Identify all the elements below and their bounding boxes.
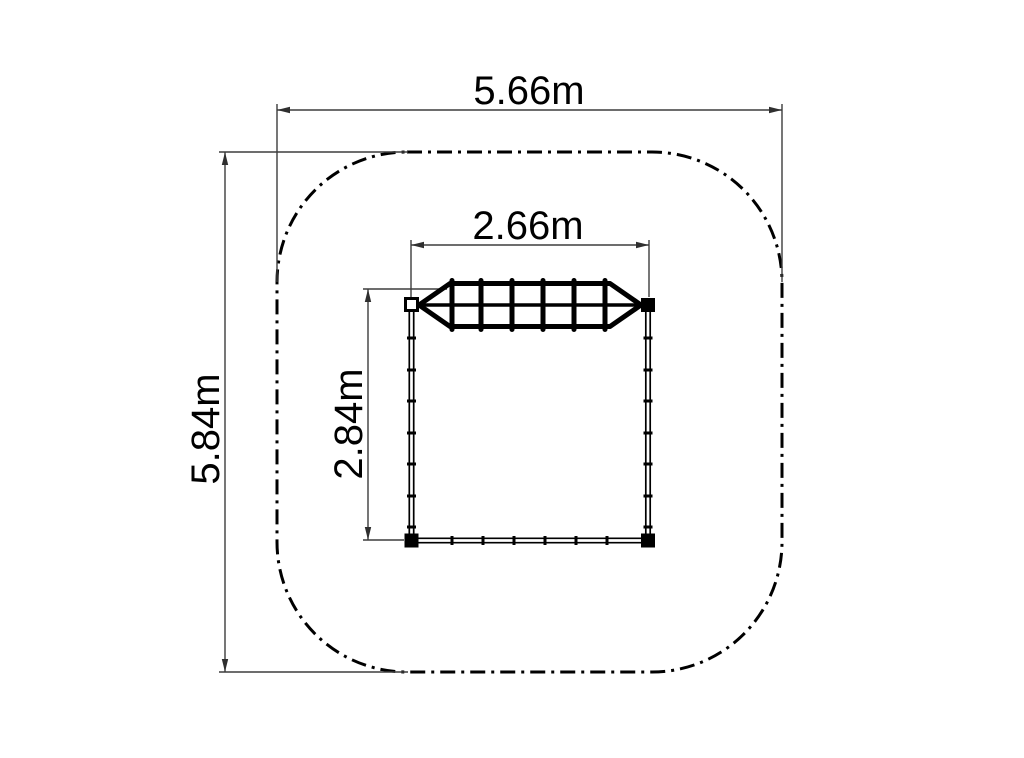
right-wall-ticks bbox=[644, 338, 653, 527]
post-bottom-left bbox=[405, 534, 418, 547]
dimension-structure-height bbox=[363, 289, 447, 540]
arrowhead-top-icon bbox=[365, 289, 371, 302]
left-wall-ticks bbox=[407, 338, 416, 527]
net-bridge bbox=[419, 281, 641, 330]
arrowhead-bottom-icon bbox=[365, 527, 371, 540]
structure-left-wall bbox=[407, 311, 416, 534]
dimension-overall-width bbox=[277, 104, 782, 282]
structure-height-label: 2.84m bbox=[327, 368, 371, 479]
structure-right-wall bbox=[644, 311, 653, 534]
arrowhead-right-icon bbox=[769, 107, 782, 113]
post-top-right bbox=[642, 299, 655, 312]
arrowhead-bottom-icon bbox=[222, 659, 228, 672]
bottom-wall-ticks bbox=[452, 536, 607, 545]
dimension-overall-height bbox=[219, 152, 408, 672]
arrowhead-top-icon bbox=[222, 152, 228, 165]
arrowhead-left-icon bbox=[411, 242, 424, 248]
plan-drawing: 5.66m 5.84m 2.66m 2.84m bbox=[0, 0, 1024, 758]
overall-width-label: 5.66m bbox=[473, 69, 584, 113]
overall-height-label: 5.84m bbox=[184, 373, 228, 484]
structure-bottom-wall bbox=[418, 536, 642, 545]
arrowhead-left-icon bbox=[277, 107, 290, 113]
post-bottom-right bbox=[642, 534, 655, 547]
climbing-structure bbox=[405, 281, 655, 548]
diagram-canvas: 5.66m 5.84m 2.66m 2.84m bbox=[0, 0, 1024, 758]
structure-width-label: 2.66m bbox=[472, 204, 583, 248]
post-top-left bbox=[406, 299, 418, 311]
arrowhead-right-icon bbox=[636, 242, 649, 248]
